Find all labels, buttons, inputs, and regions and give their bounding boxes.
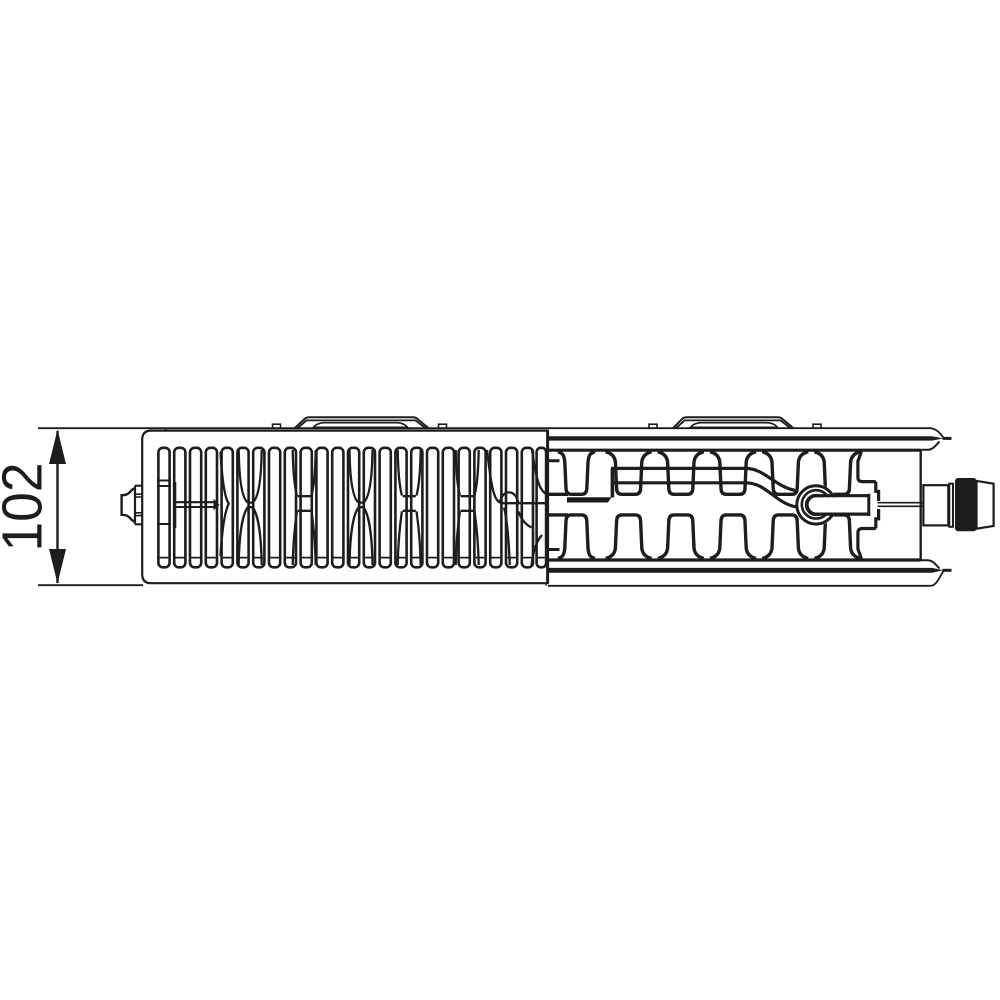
svg-text:102: 102: [0, 463, 55, 552]
